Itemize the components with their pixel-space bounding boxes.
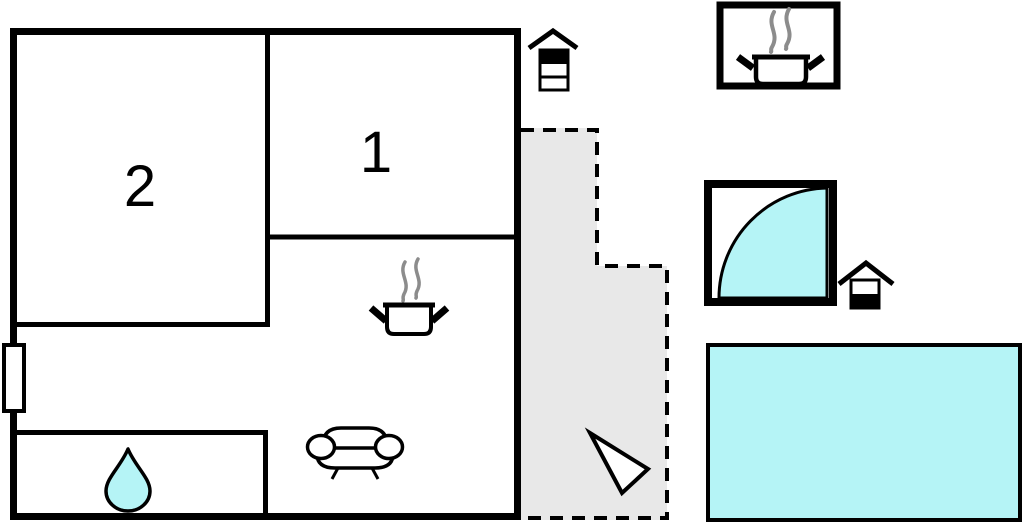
outdoor-kitchen-box — [720, 5, 837, 86]
grill-top-band — [540, 50, 568, 64]
window-symbol — [4, 345, 24, 411]
room-1-label: 1 — [360, 120, 392, 185]
room-2-label: 2 — [124, 154, 156, 219]
sofa-armrest-right — [376, 436, 403, 459]
grill-roof — [529, 31, 577, 48]
terrace-area — [521, 128, 667, 520]
grill-icon — [529, 31, 577, 90]
swimming-pool — [708, 345, 1020, 520]
pot-body — [756, 57, 806, 84]
floor-plan-page: 2 1 — [0, 0, 1024, 524]
floor-plan-svg: 2 1 — [0, 0, 1024, 524]
terrace-fill — [521, 128, 667, 520]
grill-bottom-band — [851, 294, 879, 308]
sofa-armrest-left — [308, 436, 335, 459]
pot-body — [387, 305, 431, 334]
hot-tub-box — [708, 184, 833, 302]
main-building: 2 1 — [4, 28, 518, 517]
grill-icon — [839, 263, 893, 308]
